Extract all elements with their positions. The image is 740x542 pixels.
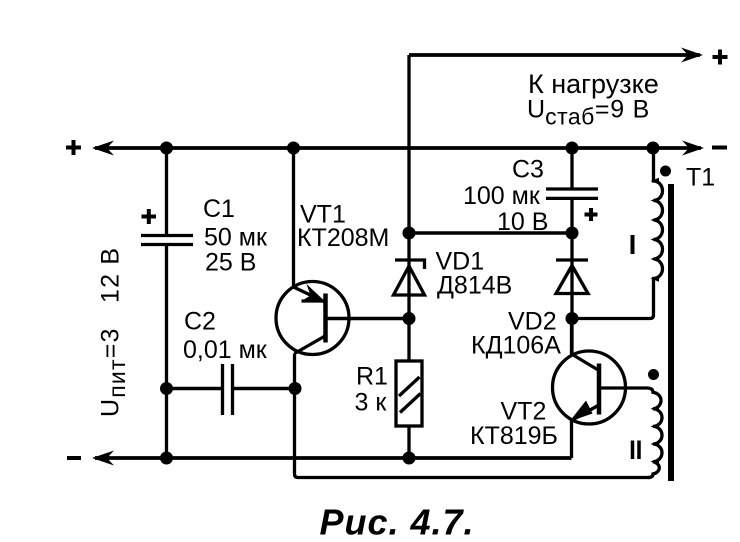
svg-text:3 к: 3 к — [355, 389, 388, 417]
svg-text:Д814В: Д814В — [437, 272, 512, 300]
svg-text:R1: R1 — [356, 363, 388, 391]
svg-text:50 мк: 50 мк — [204, 224, 268, 252]
svg-text:Т1: Т1 — [686, 164, 715, 192]
svg-text:10 В: 10 В — [497, 208, 548, 236]
svg-text:С1: С1 — [203, 195, 235, 223]
svg-text:0,01 мк: 0,01 мк — [183, 336, 268, 364]
svg-text:Рис. 4.7.: Рис. 4.7. — [319, 502, 474, 542]
svg-text:КТ208М: КТ208М — [297, 224, 389, 252]
svg-text:КД106А: КД106А — [471, 332, 561, 360]
svg-text:КТ819Б: КТ819Б — [470, 422, 558, 450]
svg-text:25 В: 25 В — [205, 249, 256, 277]
svg-text:К нагрузке: К нагрузке — [528, 69, 659, 99]
svg-text:100 мк: 100 мк — [463, 182, 541, 210]
svg-text:С2: С2 — [184, 308, 216, 336]
svg-text:С3: С3 — [512, 156, 544, 184]
